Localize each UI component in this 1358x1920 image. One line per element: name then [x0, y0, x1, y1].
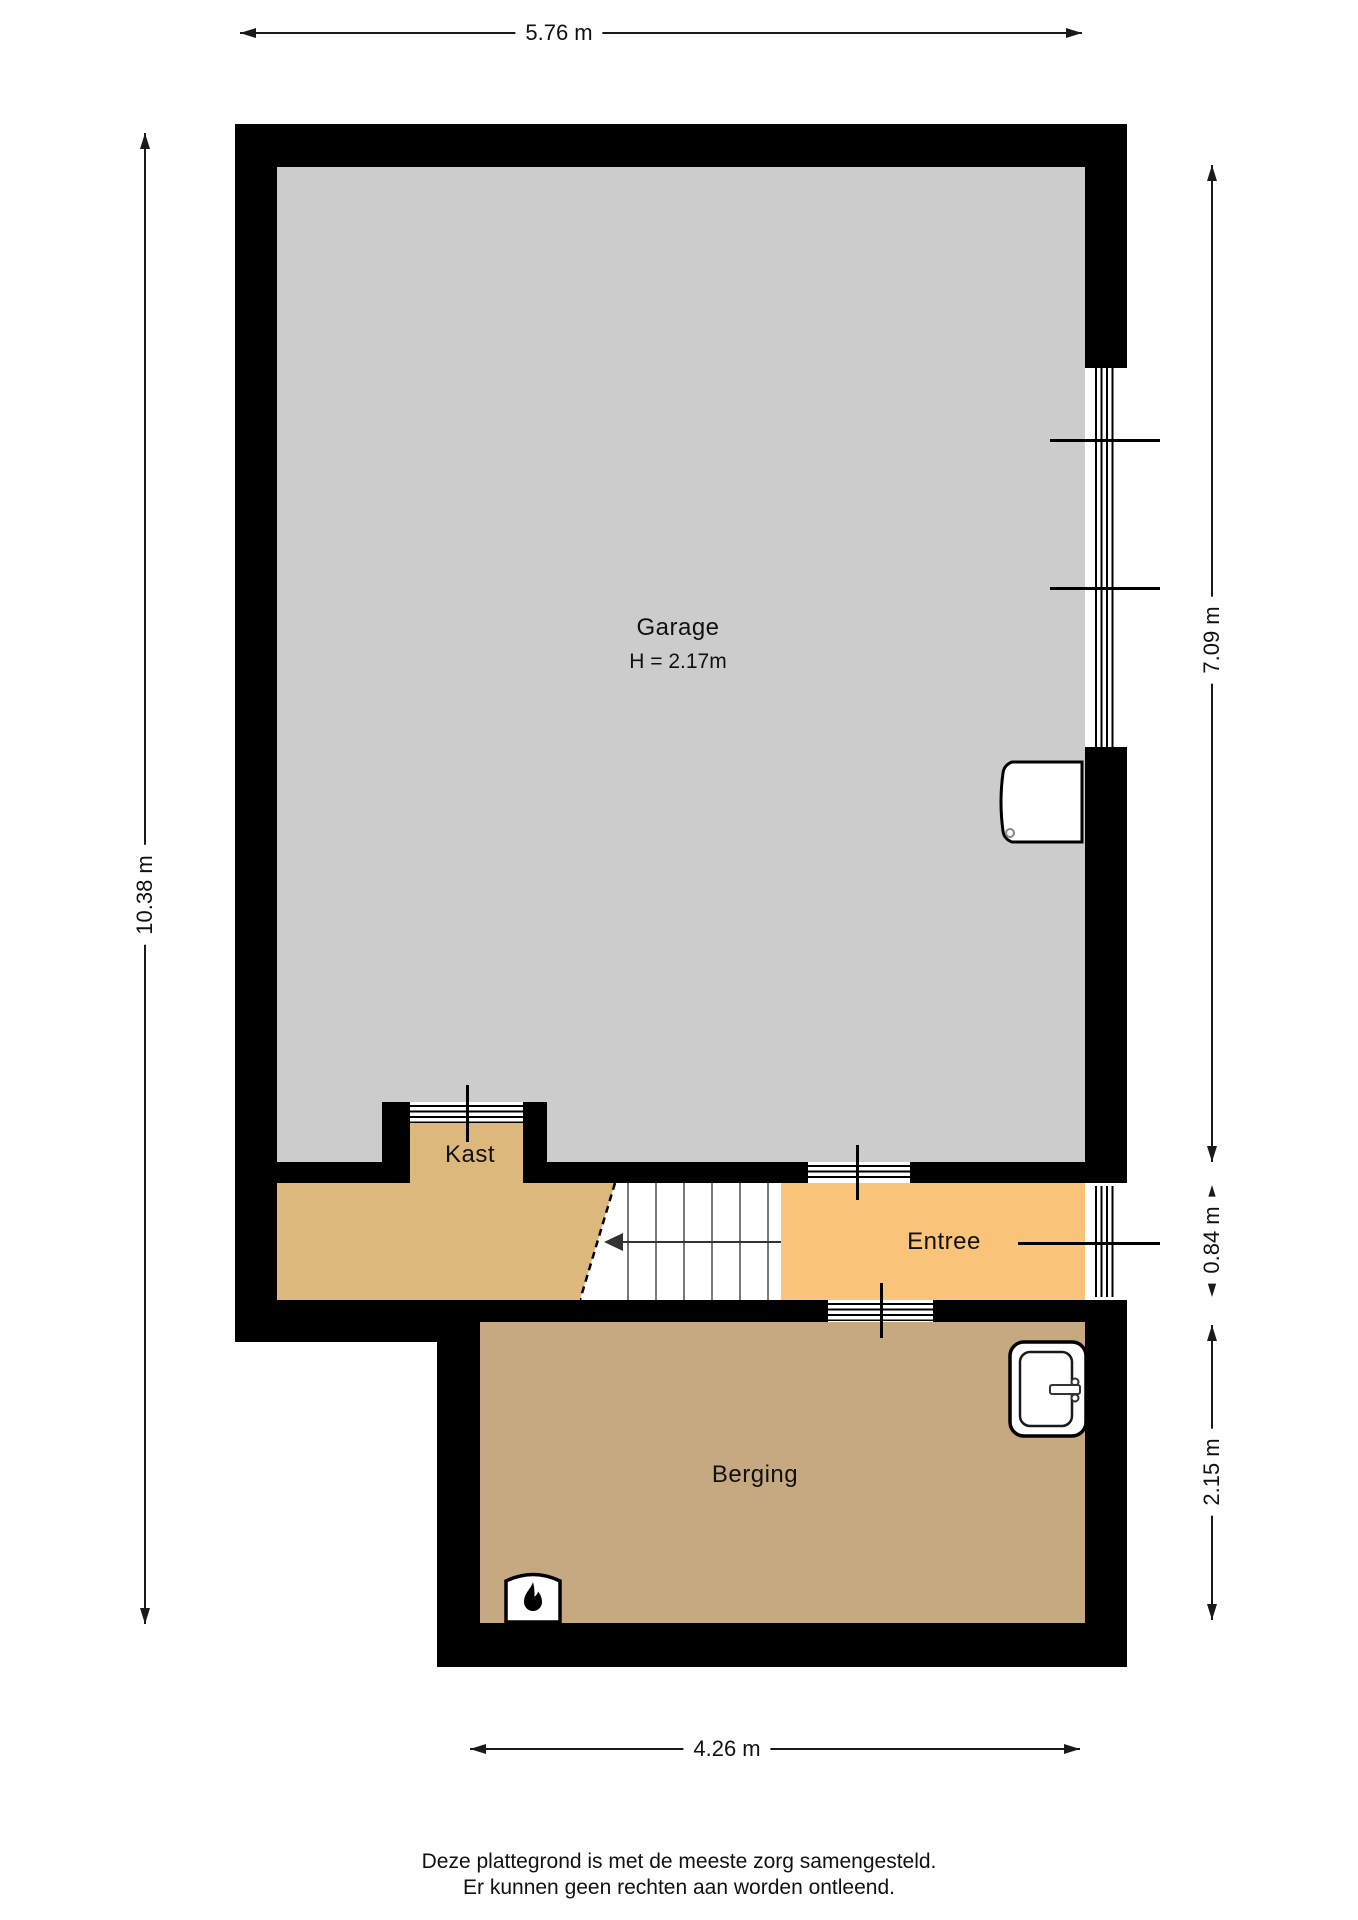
dim-right-mid-label: 0.84 m — [1199, 1196, 1225, 1283]
entree-berging-door-tick — [880, 1283, 883, 1338]
dim-bottom-label: 4.26 m — [683, 1736, 770, 1762]
berging-label: Berging — [712, 1461, 798, 1489]
front-door-tick — [1018, 1242, 1160, 1245]
garage-height-label: H = 2.17m — [629, 650, 726, 674]
wall-divider-right — [933, 1300, 1085, 1322]
wall-right-lower — [1085, 1300, 1127, 1667]
wall-garage-bottom-a — [277, 1162, 382, 1183]
kast-door-tick — [466, 1085, 469, 1142]
wall-left — [235, 124, 277, 1342]
wall-right-middle — [1085, 747, 1127, 1183]
disclaimer-line-1: Deze plattegrond is met de meeste zorg s… — [422, 1850, 937, 1874]
garage-door-leaf-object — [996, 759, 1085, 845]
floorplan-page: 5.76 m 10.38 m 7.09 m 0.84 m 2.15 m 4.26… — [0, 0, 1358, 1920]
garage-entree-door — [808, 1165, 910, 1181]
wall-right-upper — [1085, 124, 1127, 368]
entree-label: Entree — [907, 1228, 981, 1256]
wall-kast-right — [523, 1102, 547, 1183]
dim-right-top-label: 7.09 m — [1199, 596, 1225, 683]
window-tick-lower — [1050, 587, 1160, 590]
wall-bottom — [437, 1623, 1127, 1667]
wall-kast-left — [382, 1102, 410, 1183]
wall-top — [235, 124, 1127, 167]
disclaimer-line-2: Er kunnen geen rechten aan worden ontlee… — [463, 1876, 895, 1900]
sink-icon — [1008, 1340, 1088, 1438]
boiler — [502, 1566, 564, 1624]
dim-bottom-line — [470, 1748, 1080, 1750]
dim-top-line — [240, 32, 1082, 34]
garage-entree-door-tick — [856, 1145, 859, 1200]
window-tick-upper — [1050, 439, 1160, 442]
dim-top-label: 5.76 m — [515, 20, 602, 46]
stairs — [580, 1183, 781, 1300]
garage-window — [1095, 368, 1116, 747]
wall-garage-bottom-c — [910, 1162, 1085, 1183]
wall-garage-bottom-b — [547, 1162, 808, 1183]
kast-label: Kast — [445, 1141, 495, 1169]
dim-right-bottom-label: 2.15 m — [1199, 1428, 1225, 1515]
garage-label: Garage — [636, 614, 719, 642]
wall-berging-left — [437, 1300, 480, 1667]
dim-left-label: 10.38 m — [132, 845, 158, 945]
